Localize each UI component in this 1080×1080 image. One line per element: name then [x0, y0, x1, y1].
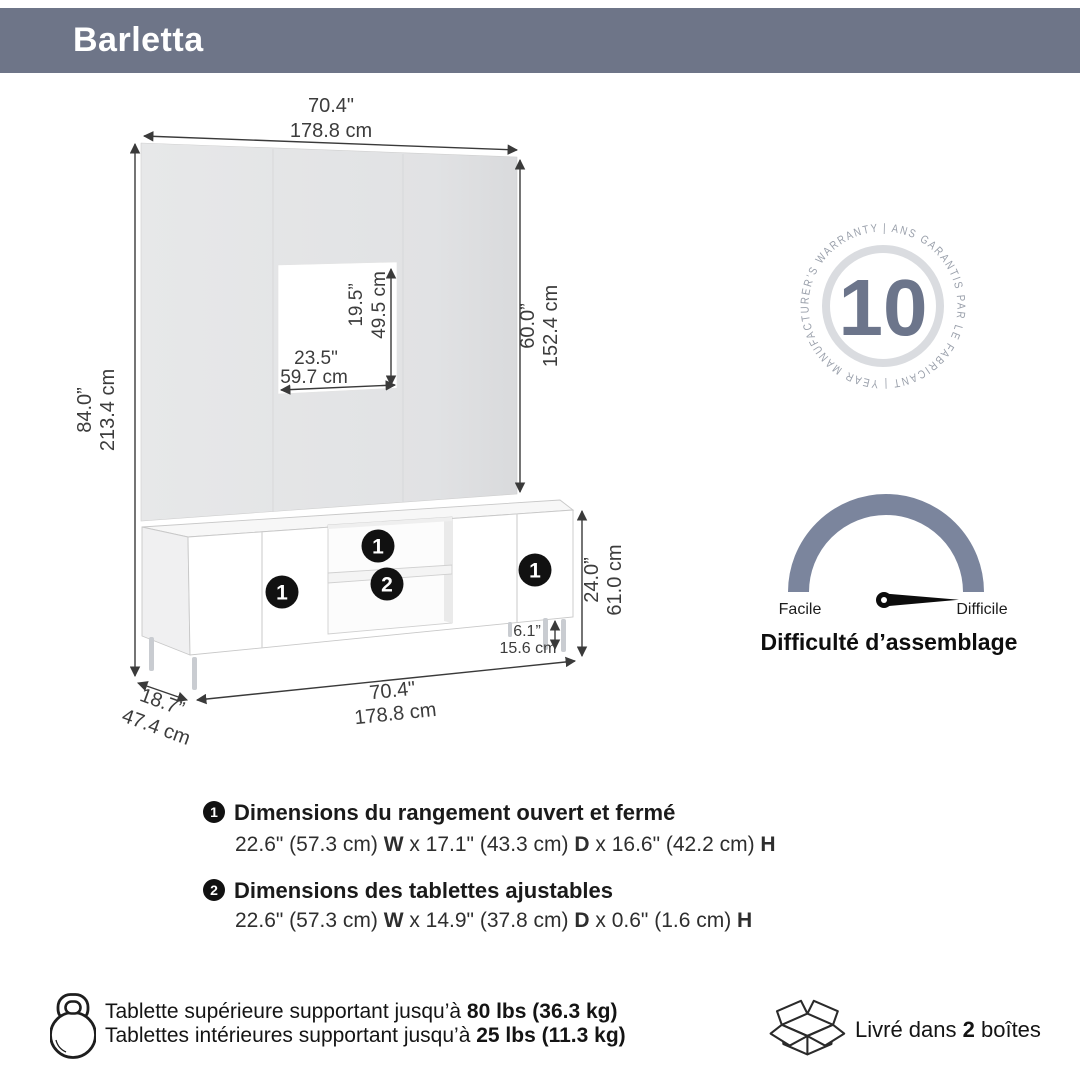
leg-front-left	[192, 657, 197, 690]
legend1-d: D	[574, 833, 589, 856]
warranty-badge: 10 | ANS GARANTIS PAR LE FABRICANT | YEA…	[793, 216, 973, 396]
legend2-d: D	[574, 909, 589, 932]
header-bar: Barletta	[0, 8, 1080, 73]
gauge-arc	[799, 505, 974, 593]
cutout-width-cm: 59.7 cm	[280, 367, 348, 388]
legend2-p4: x 0.6" (1.6 cm)	[590, 909, 738, 932]
gauge-needle	[884, 594, 959, 607]
legend-title-1: Dimensions du rangement ouvert et fermé	[234, 801, 675, 825]
leg-height-in: 6.1”	[513, 623, 541, 640]
kettlebell-icon	[50, 992, 96, 1060]
delivery-p0: Livré dans	[855, 1017, 963, 1042]
cutout-height-in: 19.5”	[346, 283, 367, 326]
overall-height-cm: 213.4 cm	[97, 369, 119, 451]
box-icon	[768, 996, 850, 1064]
legend2-p0: 22.6" (57.3 cm)	[235, 909, 384, 932]
delivery-count: 2	[963, 1017, 975, 1042]
legend-title-2: Dimensions des tablettes ajustables	[234, 879, 613, 903]
leg-back-right	[508, 622, 512, 637]
capacity-note: Tablette supérieure supportant jusqu’à 8…	[105, 1000, 626, 1048]
capacity-line-1: Tablette supérieure supportant jusqu’à 8…	[105, 1000, 626, 1024]
legend-values-2: 22.6" (57.3 cm) W x 14.9" (37.8 cm) D x …	[235, 909, 752, 933]
capacity-line-2: Tablettes intérieures supportant jusqu’à…	[105, 1024, 626, 1048]
marker-storage-right-door-num: 1	[529, 560, 541, 583]
legend-marker-2: 2	[203, 879, 225, 901]
gauge-needle-hub-hole	[881, 597, 887, 603]
leg-far-right	[561, 619, 566, 652]
top-width-in: 70.4"	[308, 95, 354, 117]
stand-height-in: 24.0”	[581, 557, 603, 603]
gauge-title: Difficulté d’assemblage	[761, 629, 1018, 655]
legend1-p0: 22.6" (57.3 cm)	[235, 833, 384, 856]
marker-storage-left-door-num: 1	[276, 582, 288, 605]
base-width-cm: 178.8 cm	[353, 699, 437, 729]
cutout-width-in: 23.5"	[294, 348, 338, 369]
stand-height-cm: 61.0 cm	[604, 544, 626, 615]
legend2-h: H	[737, 909, 752, 932]
legend-item-shelves: 2 Dimensions des tablettes ajustables	[203, 879, 613, 903]
legend1-h: H	[760, 833, 775, 856]
legend-item-storage: 1 Dimensions du rangement ouvert et ferm…	[203, 801, 675, 825]
leg-back-left	[149, 637, 154, 671]
stand-side-face	[142, 527, 190, 655]
legend1-p2: x 17.1" (43.3 cm)	[404, 833, 575, 856]
top-width-cm: 178.8 cm	[290, 120, 372, 142]
marker-storage-open-shelf-num: 1	[372, 536, 384, 559]
cutout-height-cm: 49.5 cm	[369, 271, 390, 339]
legend2-p2: x 14.9" (37.8 cm)	[404, 909, 575, 932]
base-width-in: 70.4"	[368, 678, 416, 705]
legend2-w: W	[384, 909, 404, 932]
capacity2-value: 25 lbs (11.3 kg)	[476, 1024, 625, 1047]
capacity1-value: 80 lbs (36.3 kg)	[467, 1000, 618, 1023]
warranty-years: 10	[839, 263, 928, 352]
panel-height-cm: 152.4 cm	[540, 285, 562, 367]
difficulty-gauge: Facile Difficile Difficulté d’assemblage	[720, 485, 1050, 665]
delivery-note: Livré dans 2 boîtes	[855, 1017, 1041, 1043]
legend-values-1: 22.6" (57.3 cm) W x 17.1" (43.3 cm) D x …	[235, 833, 776, 857]
capacity1-text: Tablette supérieure supportant jusqu’à	[105, 1000, 467, 1023]
legend-marker-1: 1	[203, 801, 225, 823]
product-title: Barletta	[73, 21, 204, 60]
gauge-easy-label: Facile	[779, 601, 822, 618]
legend1-w: W	[384, 833, 404, 856]
gauge-hard-label: Difficile	[956, 601, 1007, 618]
legend1-p4: x 16.6" (42.2 cm)	[590, 833, 761, 856]
capacity2-text: Tablettes intérieures supportant jusqu’à	[105, 1024, 476, 1047]
leg-height-cm: 15.6 cm	[500, 640, 557, 657]
furniture-diagram: 19.5” 49.5 cm 23.5" 59.7 cm 70.4" 178.8 …	[60, 85, 710, 775]
overall-height-in: 84.0”	[74, 387, 96, 433]
delivery-p2: boîtes	[975, 1017, 1041, 1042]
page: { "colors": { "header_bg": "#6e7588", "a…	[0, 0, 1080, 1080]
marker-shelf-num: 2	[381, 574, 393, 597]
panel-height-in: 60.0”	[517, 303, 539, 349]
